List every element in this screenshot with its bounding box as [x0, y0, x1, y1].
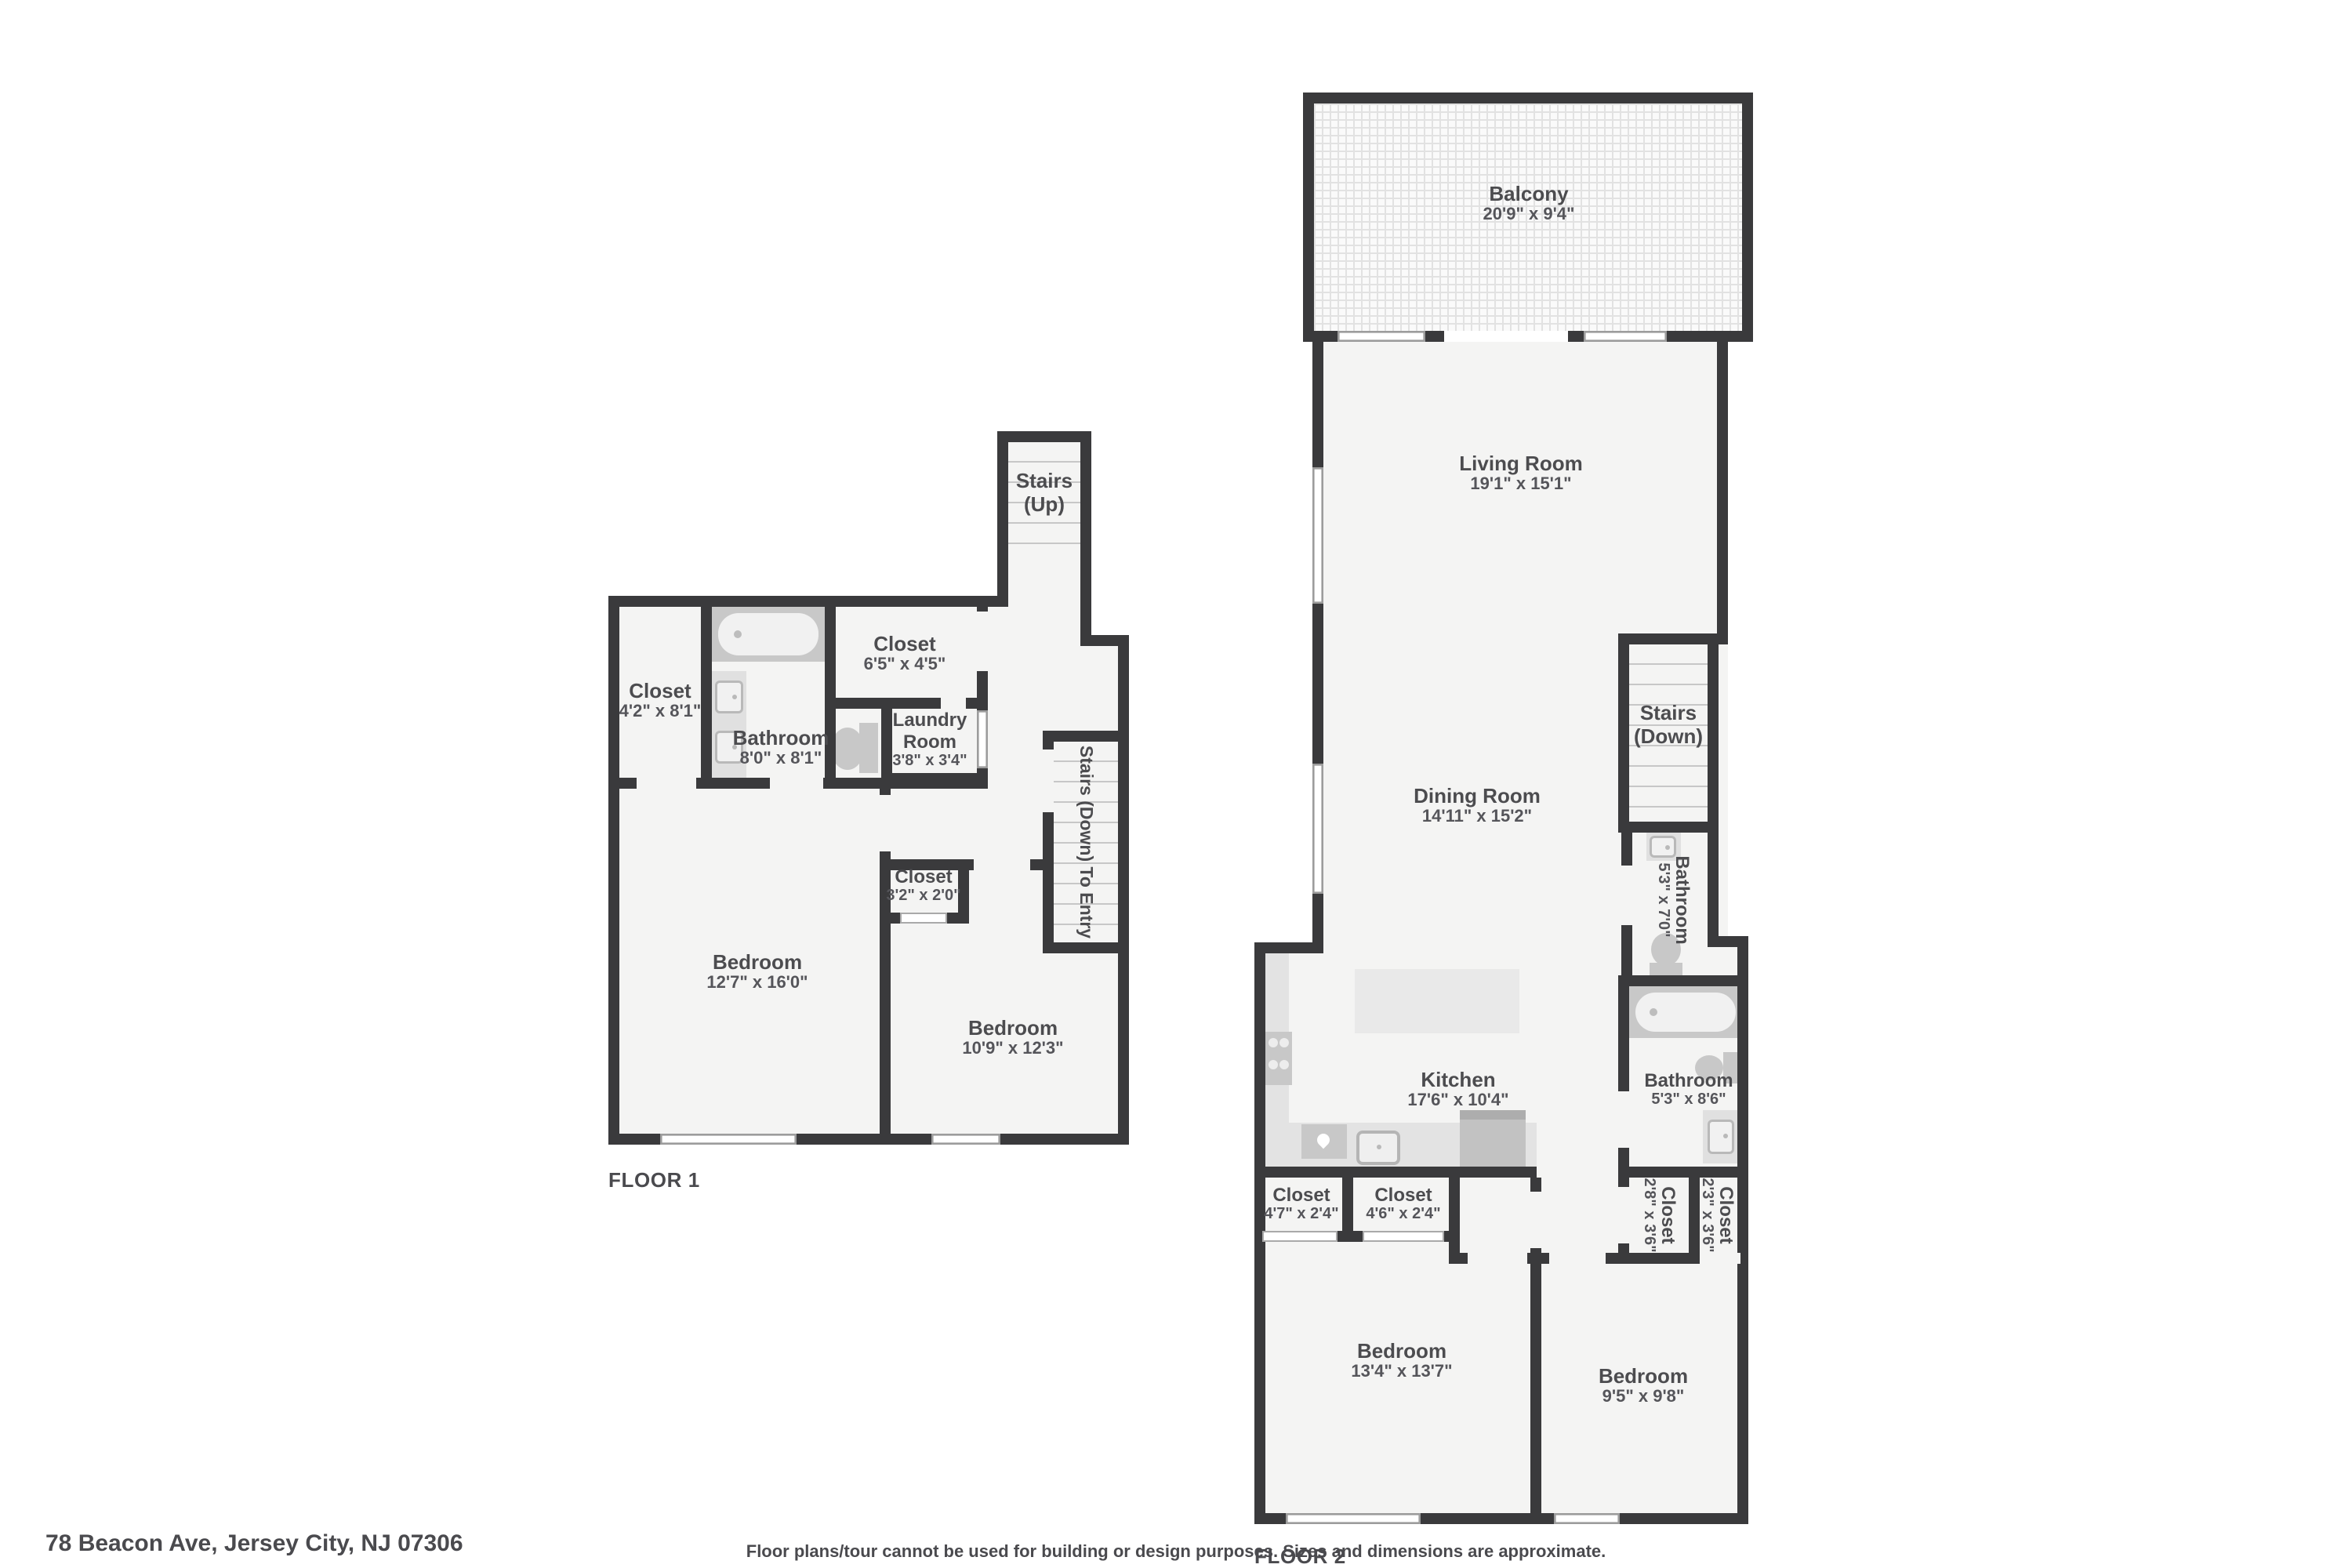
kitchen-island — [1355, 969, 1519, 1033]
door-opening — [1618, 1187, 1629, 1243]
door-opening — [637, 778, 696, 789]
room-label-floor2-bedroom-a: Bedroom 13'4" x 13'7" — [1301, 1333, 1502, 1392]
room-label-floor1-stairs-up: Stairs (Up) — [1004, 464, 1085, 524]
wall-segment — [1303, 93, 1314, 342]
wall-segment — [1118, 635, 1129, 1145]
window — [1554, 1513, 1620, 1524]
stove-icon — [1265, 1032, 1292, 1085]
window — [931, 1134, 1000, 1145]
wall-segment — [1708, 633, 1719, 947]
wall-segment — [608, 596, 1008, 607]
room-label-floor1-bedroom-b: Bedroom 10'9" x 12'3" — [914, 1010, 1112, 1069]
sink-icon — [715, 681, 743, 713]
room-label-floor2-closet-a: Closet 4'7" x 2'4" — [1258, 1182, 1345, 1229]
wall-segment — [1530, 1264, 1541, 1524]
door-opening — [770, 778, 823, 789]
room-label-floor2-closet-b: Closet 4'6" x 2'4" — [1358, 1182, 1449, 1229]
room-label-floor1-laundry: Laundry Room 3'8" x 3'4" — [884, 706, 975, 778]
room-label-floor1-closet-a: Closet 4'2" x 8'1" — [616, 674, 704, 731]
wall-segment — [1043, 942, 1129, 953]
door-opening — [1549, 1253, 1606, 1264]
window — [1286, 1513, 1421, 1524]
door-opening — [1700, 1253, 1740, 1264]
room-label-floor1-closet-c: Closet 3'2" x 2'0" — [877, 864, 971, 911]
window — [977, 710, 988, 768]
wall-segment — [1254, 1167, 1537, 1178]
exterior-notch — [1091, 596, 1129, 637]
wall-segment — [1742, 93, 1753, 342]
room-label-floor2-balcony: Balcony 20'9" x 9'4" — [1427, 176, 1631, 235]
wall-segment — [1618, 822, 1717, 833]
tub-faucet-icon — [734, 630, 742, 638]
sink-icon — [1650, 836, 1676, 858]
room-label-floor2-closet-c: Closet 2'8" x 3'6" — [1637, 1178, 1678, 1252]
room-label-floor2-bathroom-a: Bathroom 5'3" x 7'0" — [1651, 855, 1692, 944]
exterior-notch — [1728, 633, 1748, 936]
sink-icon — [1708, 1120, 1734, 1154]
room-label-floor1-closet-b: Closet 6'5" x 4'5" — [833, 627, 977, 684]
door-opening — [1363, 1231, 1444, 1242]
room-label-floor2-dining: Dining Room 14'11" x 15'2" — [1380, 778, 1574, 837]
door-opening — [1468, 1253, 1527, 1264]
door-opening — [977, 612, 988, 671]
door-opening — [974, 859, 1030, 870]
window — [1312, 764, 1323, 894]
wall-segment — [1618, 1167, 1748, 1178]
wall-segment — [1717, 331, 1728, 644]
wall-segment — [1303, 93, 1753, 103]
room-label-floor2-stairs-down: Stairs (Down) — [1624, 696, 1712, 756]
wall-segment — [997, 431, 1091, 442]
room-label-floor1-stairs-entry: Stairs (Down) To Entry — [1076, 746, 1094, 938]
room-label-floor2-kitchen: Kitchen 17'6" x 10'4" — [1392, 1063, 1524, 1120]
floorplan-canvas: Closet 4'2" x 8'1" Bathroom 8'0" x 8'1" … — [0, 0, 2352, 1568]
door-opening — [880, 795, 891, 851]
window — [1584, 331, 1667, 342]
room-label-floor1-bedroom-a: Bedroom 12'7" x 16'0" — [659, 944, 856, 1004]
door-opening — [1530, 1192, 1541, 1248]
door-opening — [1621, 866, 1632, 925]
wall-segment — [1621, 975, 1748, 986]
kitchen-sink-icon — [1356, 1131, 1400, 1165]
wall-segment — [1043, 731, 1129, 742]
sliding-door-opening — [1444, 331, 1568, 342]
window — [1312, 467, 1323, 604]
toilet-tank — [859, 723, 878, 773]
door-opening — [1043, 750, 1054, 812]
room-label-floor1-bathroom: Bathroom 8'0" x 8'1" — [718, 721, 844, 778]
wall-segment — [1449, 1178, 1460, 1264]
wall-segment — [1737, 936, 1748, 1524]
door-opening — [1262, 1231, 1338, 1242]
dishwasher-icon — [1301, 1124, 1347, 1159]
room-label-floor2-bedroom-b: Bedroom 9'5" x 9'8" — [1546, 1358, 1740, 1417]
tub-faucet-icon — [1650, 1008, 1657, 1016]
room-label-floor2-closet-d: Closet 2'3" x 3'6" — [1695, 1178, 1736, 1252]
window — [1338, 331, 1425, 342]
window — [660, 1134, 797, 1145]
room-label-floor2-living: Living Room 19'1" x 15'1" — [1427, 445, 1615, 505]
floor1-caption: FLOOR 1 — [608, 1168, 700, 1192]
room-label-floor2-bathroom-b: Bathroom 5'3" x 8'6" — [1628, 1063, 1750, 1120]
door-opening — [900, 913, 947, 924]
disclaimer-text: Floor plans/tour cannot be used for buil… — [0, 1543, 2352, 1562]
